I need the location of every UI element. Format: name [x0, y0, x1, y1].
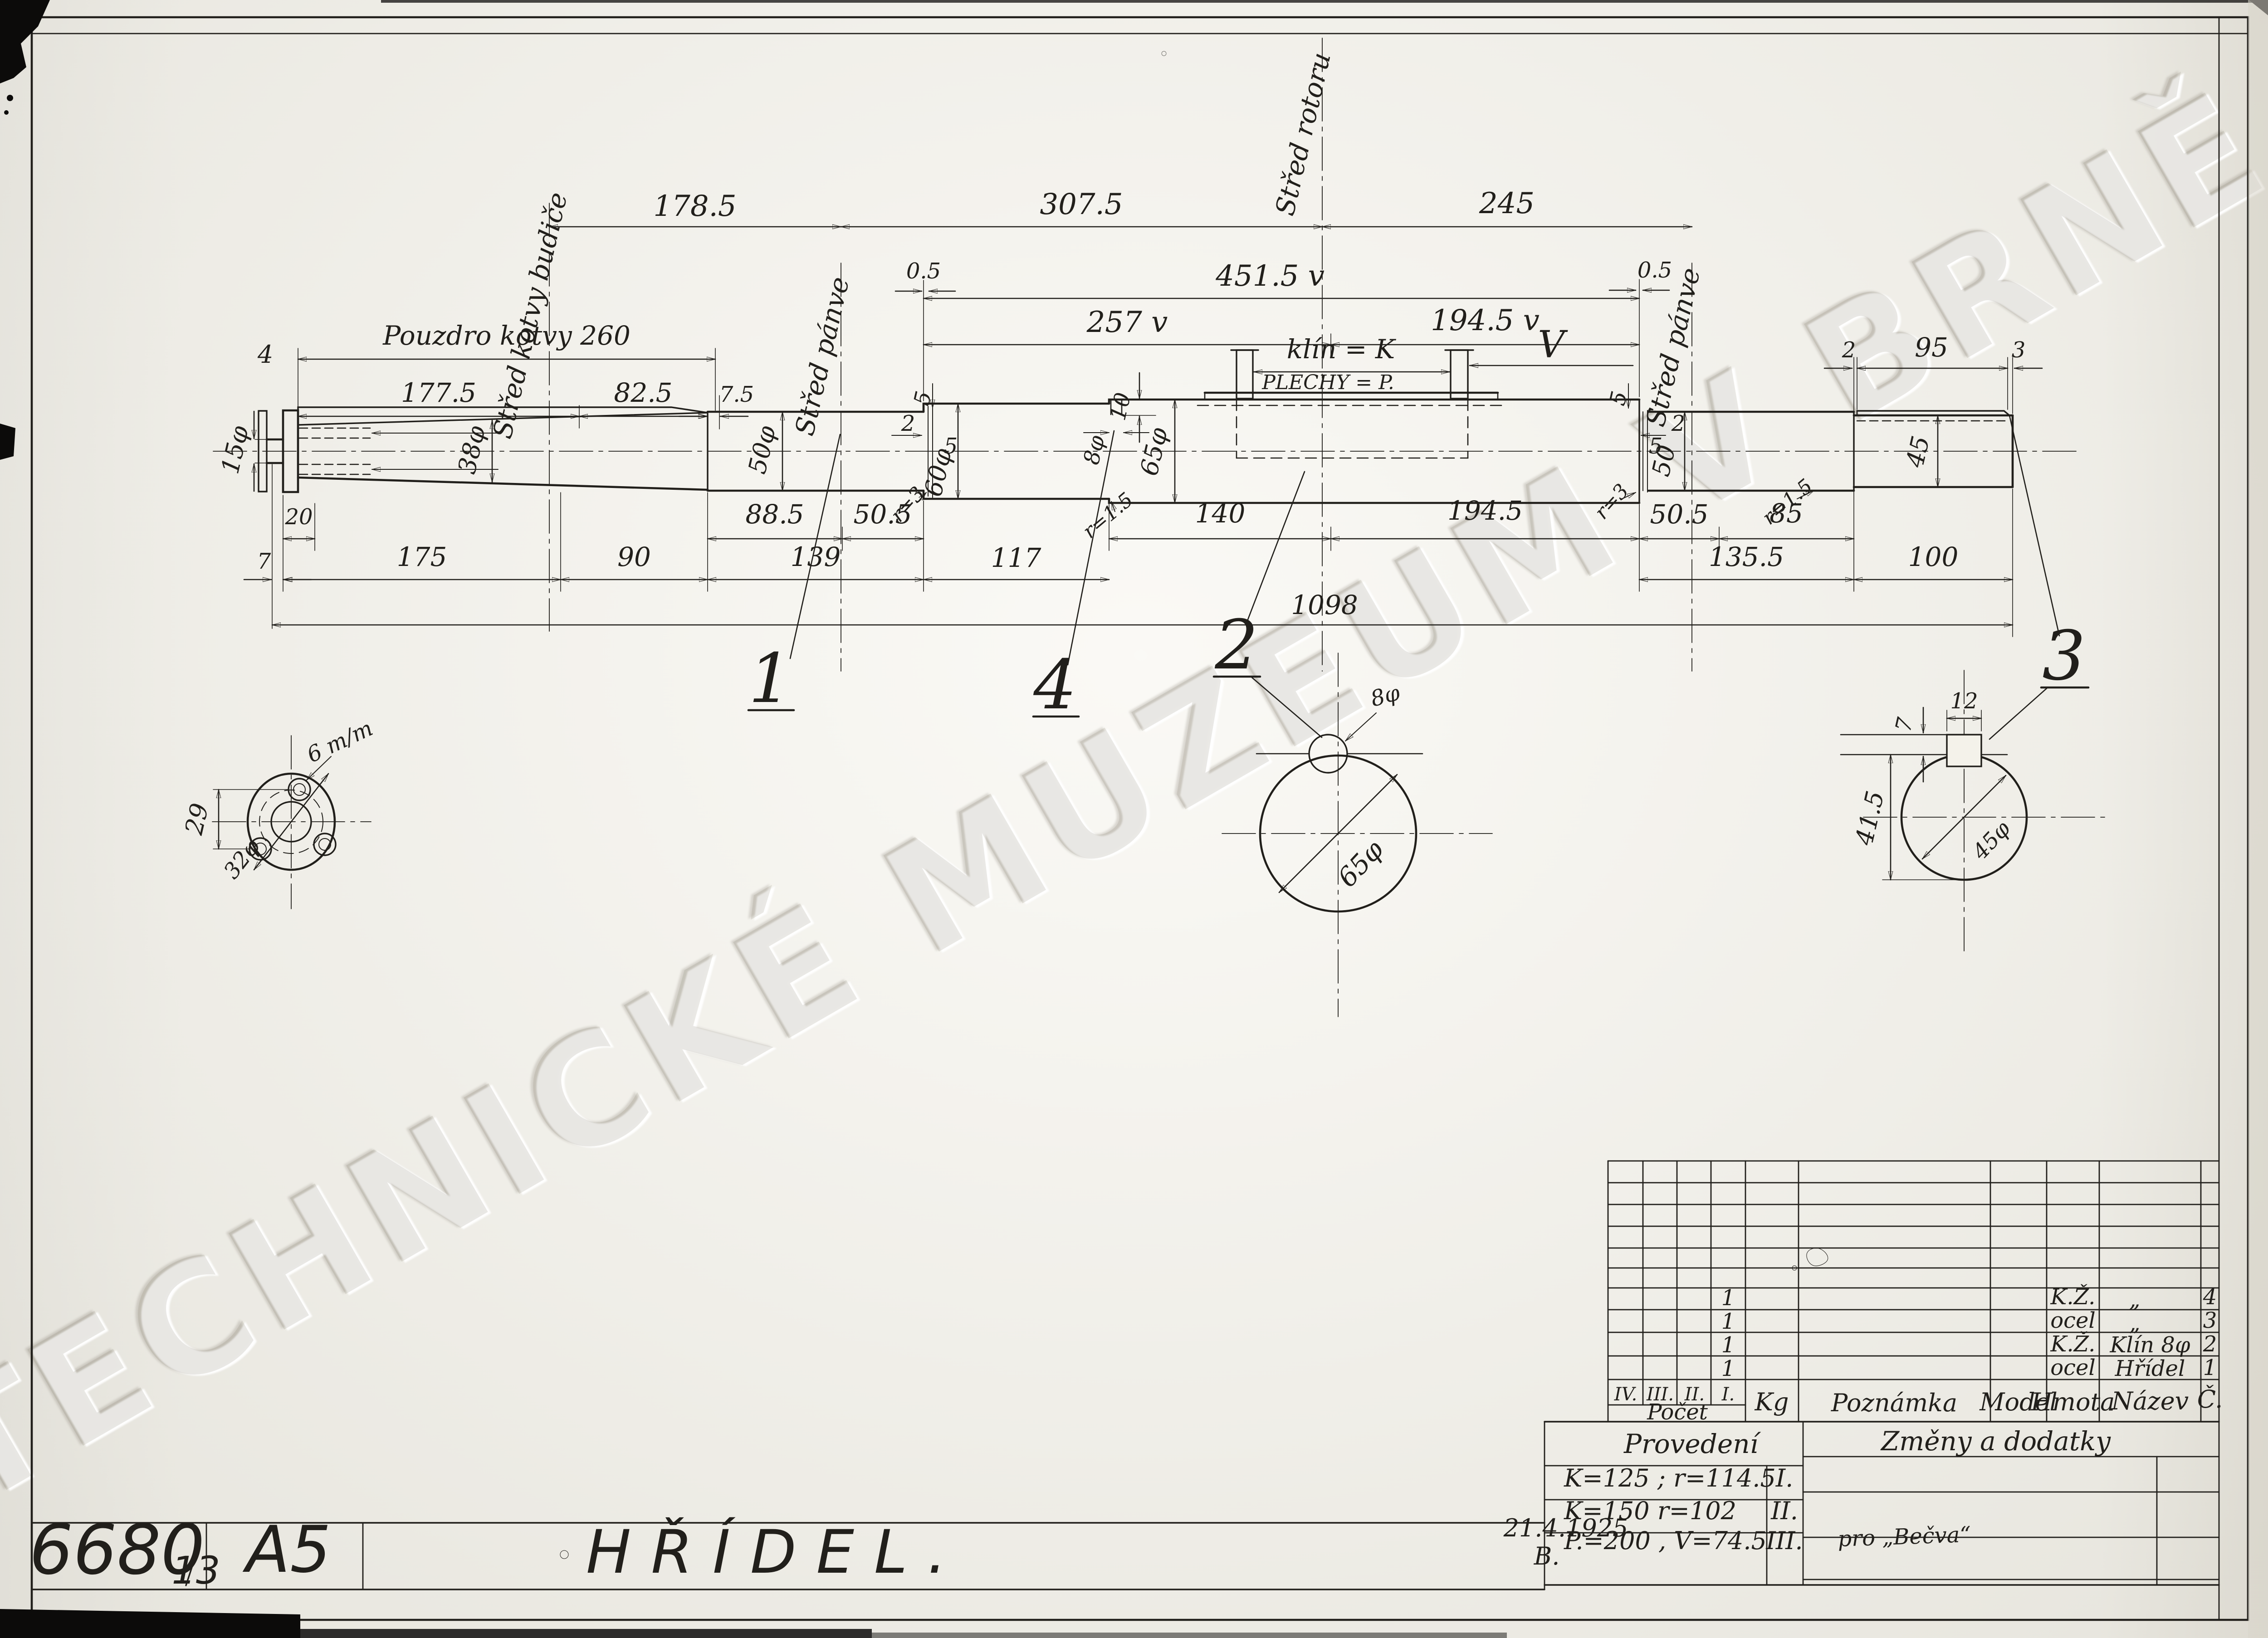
- table-row: 1 K.Ž. Klín 8φ 2: [1721, 1331, 2217, 1358]
- ink-blot: [1807, 1248, 1828, 1266]
- dim-8fi: 8φ: [1079, 433, 1110, 467]
- det2-dim-8fi: 8φ: [1368, 680, 1403, 712]
- dim-0-5-right: 0.5: [1637, 258, 1672, 283]
- dim-key-3: 3: [2012, 337, 2026, 363]
- dim-20: 20: [284, 504, 313, 530]
- dim-245: 245: [1479, 187, 1535, 220]
- dim-7-5: 7.5: [719, 382, 754, 407]
- step-5-right-b: 5: [1649, 434, 1663, 459]
- dim-194-5-top: 194.5 v: [1431, 304, 1540, 337]
- det3-dim-12: 12: [1950, 688, 1978, 714]
- label-plechy: PLECHY = P.: [1261, 371, 1394, 394]
- roman-iii: III.: [1646, 1384, 1674, 1405]
- dim-175: 175: [397, 541, 447, 572]
- provedeni-row-1: K=125 ; r=114.5: [1564, 1464, 1776, 1492]
- revisions-block: Provedení K=125 ; r=114.5 I. K=150 r=102…: [1503, 1422, 2219, 1589]
- dim-451-5: 451.5 v: [1215, 259, 1325, 293]
- det2-dim-65fi: 65φ: [1331, 834, 1389, 893]
- row4-count: 1: [1721, 1285, 1735, 1311]
- dim-307-5: 307.5: [1040, 188, 1123, 221]
- row4-material: K.Ž.: [2050, 1284, 2096, 1310]
- drawing-canvas: 178.5 307.5 245 451.5 v 257 v 194.5 v Po…: [0, 0, 2268, 1638]
- balloon-2: 2: [1214, 606, 1258, 685]
- row2-name: Klín 8φ: [2110, 1332, 2190, 1358]
- dim-135-5: 135.5: [1709, 541, 1784, 572]
- balloon-numbers: 1 4 2 3: [748, 606, 2085, 725]
- axis-lines: [212, 38, 2108, 1017]
- dim-117: 117: [991, 542, 1041, 573]
- row4-name: „: [2129, 1287, 2141, 1312]
- provedeni-mark-2: II.: [1770, 1497, 1798, 1525]
- scanned-drawing-sheet: TECHNICKÉ MUZEUM V BRNĚ: [0, 0, 2268, 1638]
- col-header-poznamka: Poznámka: [1831, 1389, 1957, 1417]
- dia-15: 15φ: [215, 423, 254, 477]
- dim-1098: 1098: [1291, 590, 1358, 620]
- label-v: V: [1538, 323, 1568, 366]
- dim-90: 90: [617, 541, 651, 572]
- det1-dim-29: 29: [179, 800, 214, 838]
- dia-50-left: 50φ: [743, 423, 781, 477]
- revision-signature: B.: [1534, 1542, 1560, 1570]
- dim-key-95: 95: [1915, 332, 1948, 363]
- dimension-texts: 178.5 307.5 245 451.5 v 257 v 194.5 v Po…: [215, 49, 2025, 620]
- drawing-title: HŘÍDEL.: [586, 1517, 966, 1587]
- det3-dim-7: 7: [1891, 715, 1919, 735]
- provedeni-mark-3: III.: [1765, 1526, 1803, 1555]
- dia-45: 45: [1900, 433, 1935, 470]
- dim-257: 257 v: [1086, 306, 1168, 339]
- dim-50-5-b: 50.5: [1650, 499, 1708, 530]
- roman-iv: IV.: [1614, 1384, 1637, 1405]
- table-row: 1 ocel Hřídel 1: [1721, 1355, 2217, 1381]
- col-header-hmota: Hmota: [2031, 1388, 2115, 1416]
- axis-label-rotoru: Střed rotoru: [1269, 49, 1337, 219]
- dim-50-5-a: 50.5: [853, 499, 912, 530]
- row2-material: K.Ž.: [2050, 1331, 2096, 1357]
- radius-1-5-left: r=1.5: [1078, 488, 1138, 543]
- dia-38: 38φ: [452, 423, 491, 477]
- detail-rotor-section: [1256, 713, 1422, 912]
- row2-count: 1: [1721, 1332, 1735, 1358]
- zmeny-title: Změny a dodatky: [1880, 1426, 2111, 1457]
- radius-3-right: r=3: [1590, 479, 1633, 524]
- revision-note: pro „Bečva“: [1837, 1522, 1971, 1552]
- dim-4: 4: [257, 340, 273, 369]
- balloon-4: 4: [1033, 646, 1076, 725]
- col-header-nazev: Název: [2111, 1387, 2189, 1415]
- axis-label-budice: Střed kotvy budiče: [487, 189, 573, 441]
- det3-dim-41-5: 41.5: [1850, 788, 1890, 848]
- axis-label-panve-right: Střed pánve: [1640, 265, 1706, 429]
- col-header-cislo: Č.: [2197, 1384, 2223, 1414]
- parts-table: Kg Poznámka Model Hmota Název Č. Počet I…: [1545, 1161, 2223, 1425]
- provedeni-mark-1: I.: [1775, 1464, 1794, 1492]
- step-2-right: 2: [1671, 411, 1686, 436]
- dim-7: 7: [257, 549, 271, 574]
- dim-10: 10: [1105, 390, 1136, 423]
- title-block: 6680 13 A5 HŘÍDEL.: [29, 1510, 1545, 1593]
- roman-ii: II.: [1684, 1384, 1705, 1405]
- dim-177-5: 177.5: [401, 377, 476, 408]
- dim-key-2: 2: [1842, 337, 1856, 363]
- dim-178-5: 178.5: [653, 190, 736, 223]
- step-2-left: 2: [901, 411, 915, 436]
- row4-number: 4: [2203, 1284, 2217, 1310]
- balloon-3: 3: [2042, 617, 2085, 696]
- drawing-number-suffix: 13: [172, 1548, 220, 1593]
- dim-85: 85: [1769, 498, 1803, 529]
- row3-number: 3: [2203, 1308, 2217, 1333]
- roman-i: I.: [1721, 1384, 1735, 1405]
- balloon-1: 1: [748, 639, 792, 718]
- row1-count: 1: [1721, 1356, 1735, 1381]
- parts-table-grid: [1545, 1161, 2219, 1422]
- detail-texts: 29 6 m/m 32φ 8φ 65φ 12 7 41.5 45φ: [179, 680, 2015, 893]
- axis-label-panve-left: Střed pánve: [789, 274, 855, 439]
- sheet-format: A5: [242, 1512, 331, 1587]
- dim-0-5-left: 0.5: [906, 258, 941, 284]
- provedeni-title: Provedení: [1623, 1428, 1761, 1459]
- revision-date: 21.4.1925: [1503, 1514, 1628, 1542]
- row3-count: 1: [1721, 1309, 1735, 1334]
- dim-139: 139: [791, 541, 841, 572]
- row2-number: 2: [2203, 1331, 2217, 1357]
- label-klin: klín = K: [1287, 334, 1397, 365]
- dim-82-5: 82.5: [614, 377, 672, 408]
- pin-section: [1309, 735, 1347, 773]
- col-header-kg: Kg: [1755, 1388, 1789, 1416]
- dim-100: 100: [1908, 541, 1959, 572]
- step-5-left-b: 5: [944, 434, 958, 459]
- det3-dim-45fi: 45φ: [1967, 816, 2015, 865]
- label-pouzdro-kotvy: Pouzdro kotvy 260: [382, 320, 631, 351]
- dim-140: 140: [1195, 498, 1246, 529]
- dim-88-5: 88.5: [745, 499, 804, 530]
- dim-194-5-bottom: 194.5: [1447, 495, 1523, 526]
- row1-number: 1: [2203, 1355, 2217, 1380]
- row3-material: ocel: [2050, 1308, 2096, 1333]
- row1-name: Hřídel: [2115, 1356, 2185, 1381]
- det1-dim-6mm: 6 m/m: [303, 716, 376, 768]
- title-dot: [560, 1550, 568, 1559]
- row1-material: ocel: [2050, 1355, 2096, 1380]
